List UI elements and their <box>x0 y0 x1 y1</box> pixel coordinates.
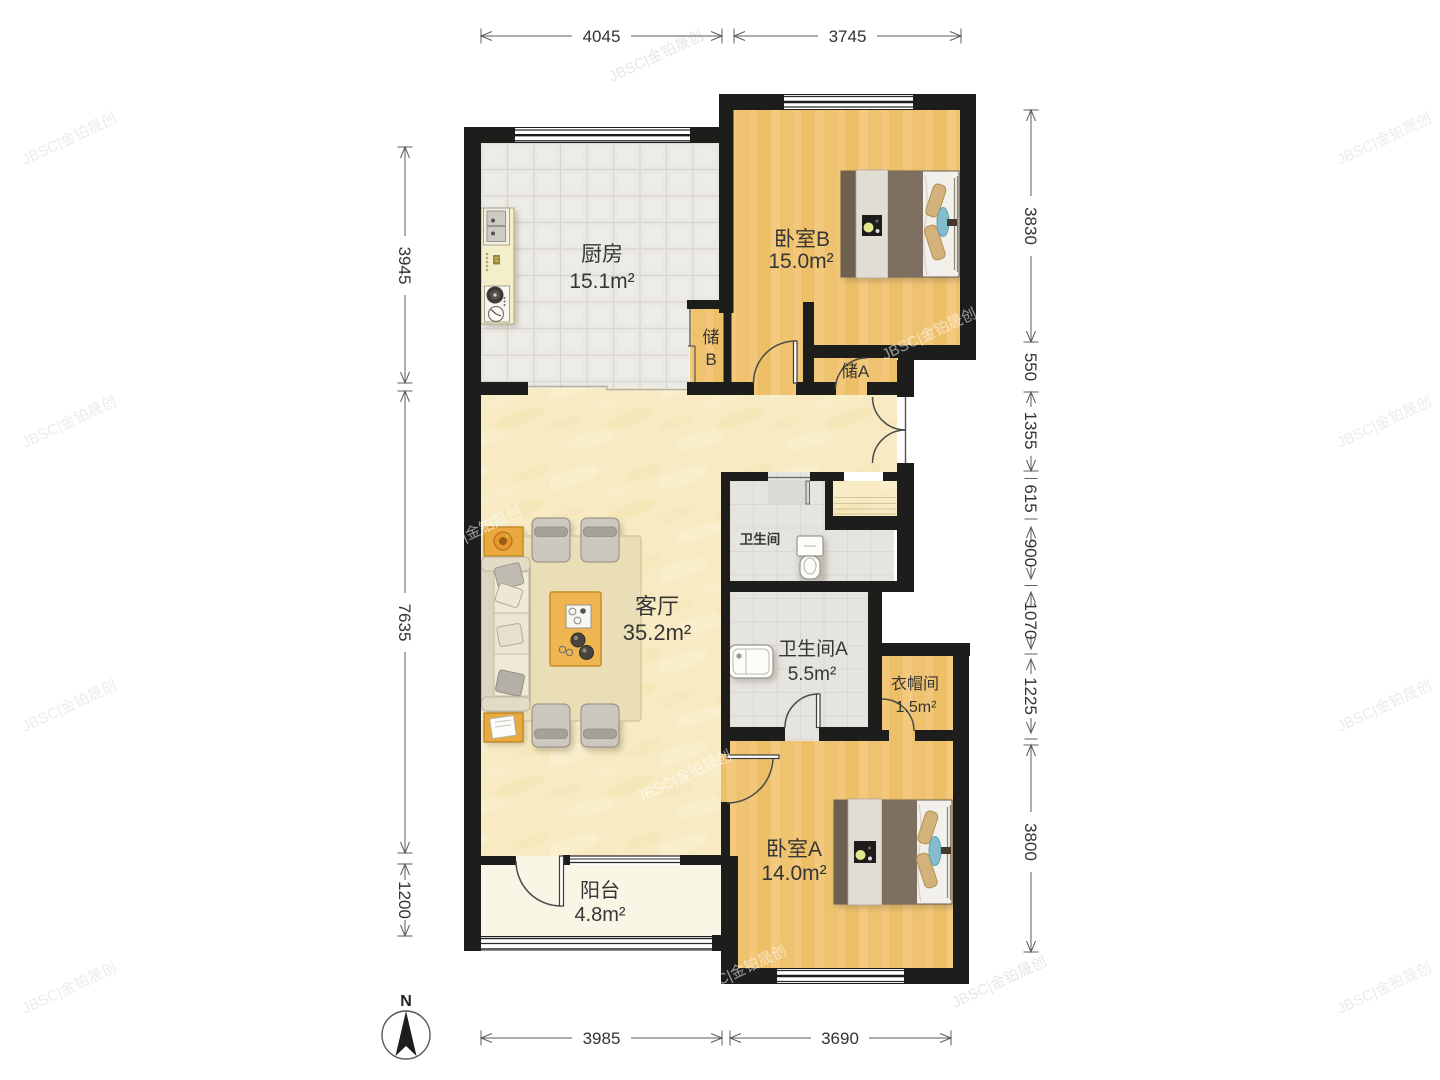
svg-text:1070: 1070 <box>1021 602 1040 640</box>
svg-text:550: 550 <box>1021 353 1040 381</box>
svg-text:卧室A: 卧室A <box>766 838 822 861</box>
svg-text:1200: 1200 <box>395 881 414 919</box>
svg-text:1.5m²: 1.5m² <box>896 699 938 716</box>
svg-text:卫生间A: 卫生间A <box>778 638 848 660</box>
svg-text:615: 615 <box>1021 484 1040 512</box>
svg-text:储A: 储A <box>841 362 870 381</box>
svg-text:3745: 3745 <box>829 27 867 46</box>
svg-text:35.2m²: 35.2m² <box>623 620 691 645</box>
svg-text:4.8m²: 4.8m² <box>574 904 625 926</box>
svg-text:卫生间: 卫生间 <box>740 531 781 547</box>
svg-text:卧室B: 卧室B <box>774 228 830 251</box>
svg-text:3945: 3945 <box>395 247 414 285</box>
svg-text:N: N <box>400 993 412 1010</box>
svg-text:衣帽间: 衣帽间 <box>891 675 939 693</box>
svg-text:B: B <box>705 350 716 369</box>
svg-text:厨房: 厨房 <box>581 243 623 266</box>
svg-text:4045: 4045 <box>583 27 621 46</box>
svg-text:3830: 3830 <box>1021 207 1040 245</box>
svg-text:15.1m²: 15.1m² <box>569 270 634 293</box>
svg-text:3690: 3690 <box>821 1029 859 1048</box>
svg-text:1225: 1225 <box>1021 677 1040 715</box>
svg-text:7635: 7635 <box>395 604 414 642</box>
svg-text:阳台: 阳台 <box>580 879 620 902</box>
svg-text:900: 900 <box>1021 539 1040 567</box>
svg-text:14.0m²: 14.0m² <box>761 862 826 885</box>
svg-text:15.0m²: 15.0m² <box>768 250 833 273</box>
svg-text:3800: 3800 <box>1021 823 1040 861</box>
svg-text:3985: 3985 <box>583 1029 621 1048</box>
svg-text:客厅: 客厅 <box>635 594 679 619</box>
svg-text:1355: 1355 <box>1021 412 1040 450</box>
svg-text:5.5m²: 5.5m² <box>788 664 837 685</box>
svg-text:储: 储 <box>703 328 720 347</box>
